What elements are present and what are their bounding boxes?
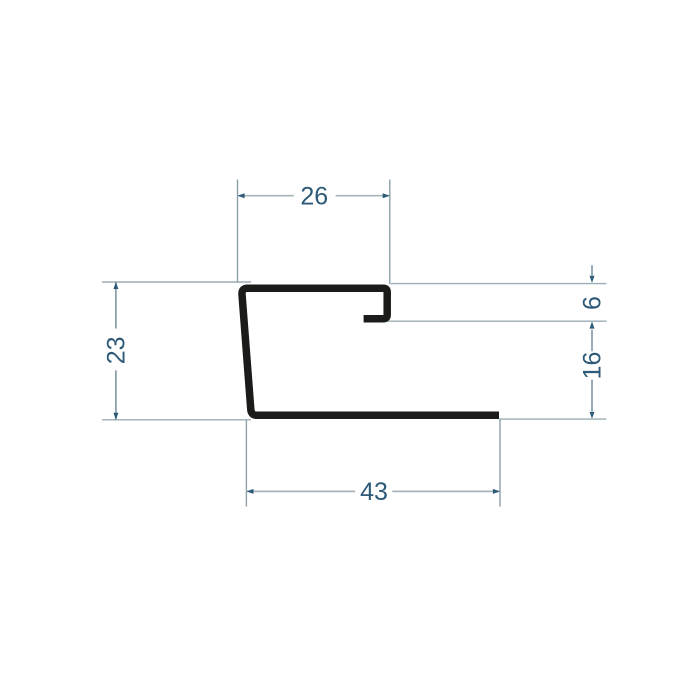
svg-text:43: 43 xyxy=(360,478,388,506)
svg-text:23: 23 xyxy=(103,336,131,364)
svg-text:16: 16 xyxy=(578,352,606,380)
svg-text:26: 26 xyxy=(300,183,328,211)
svg-text:6: 6 xyxy=(579,296,607,310)
